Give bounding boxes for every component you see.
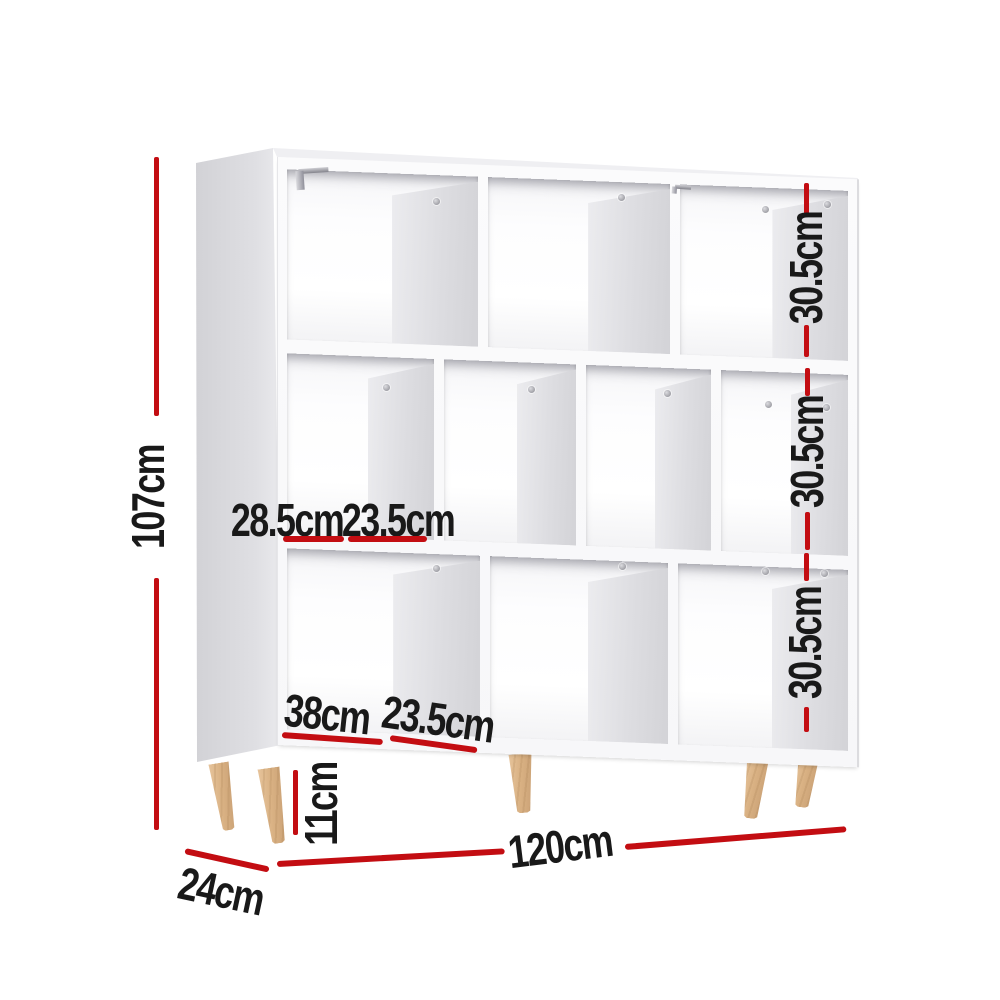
dim-line-shelf1 <box>804 325 809 357</box>
dim-line-shelf3 <box>804 553 809 581</box>
bracket-arm <box>295 171 304 191</box>
screw-detail <box>618 194 625 201</box>
anti-tip-bracket <box>295 165 333 193</box>
screw-detail <box>619 563 626 570</box>
dim-line-mid-cell-a <box>283 536 344 542</box>
cubby-cell <box>490 556 668 744</box>
dim-line-shelf3 <box>804 707 809 732</box>
screw-detail <box>762 206 769 213</box>
cubby-cell <box>586 365 711 551</box>
cubby-inner-wall <box>588 560 668 744</box>
bracket-arm <box>672 186 677 193</box>
cubby-cell <box>287 169 478 346</box>
dim-line-mid-cell-b <box>348 536 427 542</box>
dim-label-leg-height: 11cm <box>298 762 344 846</box>
cubby-inner-wall <box>655 368 711 551</box>
cubby-cell <box>488 177 670 354</box>
dim-label-width: 120cm <box>506 817 615 875</box>
screw-detail <box>383 384 390 391</box>
screw-detail <box>765 401 772 408</box>
dim-label-height: 107cm <box>125 445 171 549</box>
dim-line-height-top <box>154 157 159 416</box>
dim-label-shelf3-height: 30.5cm <box>782 587 828 699</box>
anti-tip-bracket <box>672 182 691 193</box>
dim-label-shelf2-height: 30.5cm <box>784 396 830 508</box>
dim-label-shelf1-height: 30.5cm <box>783 212 829 324</box>
cabinet-side-panel <box>196 148 281 762</box>
dim-line-shelf2 <box>805 368 810 396</box>
screw-detail <box>664 390 671 397</box>
dim-line-shelf2 <box>805 512 810 550</box>
screw-detail <box>821 570 828 577</box>
dim-line-shelf1 <box>804 183 809 214</box>
dim-line-height-bottom <box>154 578 159 830</box>
cabinet-front <box>277 157 859 767</box>
screw-detail <box>433 198 440 205</box>
cubby-inner-wall <box>517 362 576 545</box>
screw-detail <box>433 565 440 572</box>
bracket-arm <box>675 185 691 190</box>
screw-detail <box>762 568 769 575</box>
cubby-cell <box>444 359 576 545</box>
screw-detail <box>824 201 831 208</box>
cubby-inner-wall <box>588 181 670 354</box>
bookshelf-dimension-diagram: 107cm 30.5cm 30.5cm 30.5cm 28.5cm 23.5cm… <box>0 0 1000 1000</box>
screw-detail <box>528 386 535 393</box>
